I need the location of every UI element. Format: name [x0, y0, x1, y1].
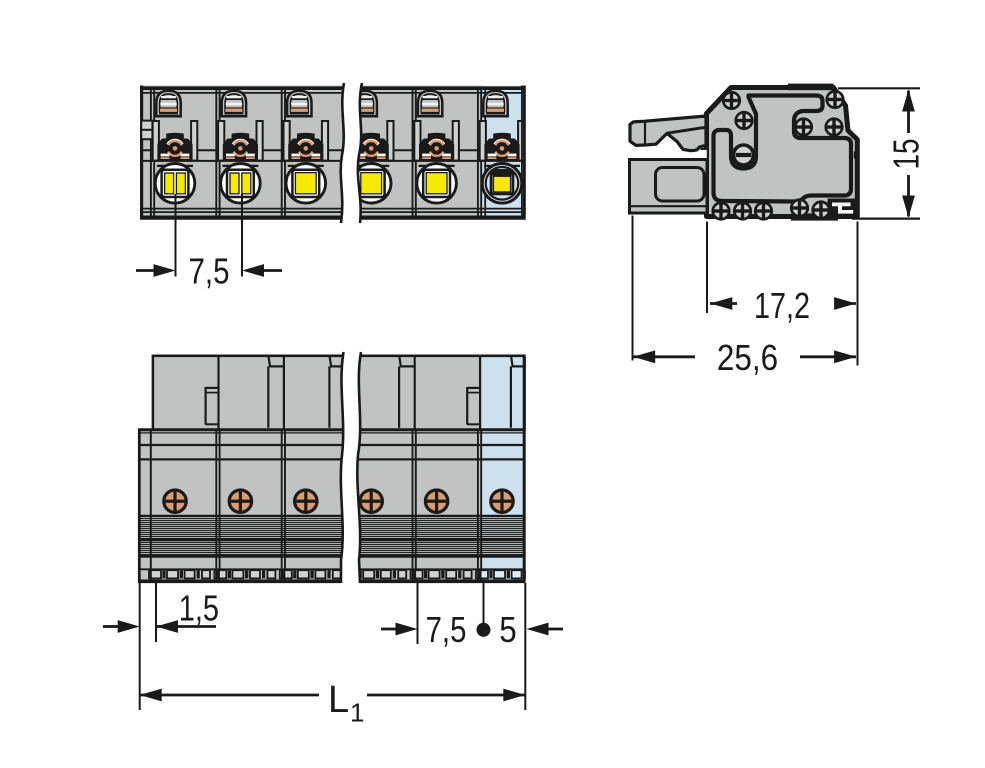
svg-text:17,2: 17,2: [754, 285, 810, 326]
svg-text:25,6: 25,6: [717, 337, 778, 378]
svg-text:1,5: 1,5: [179, 588, 219, 629]
svg-text:1: 1: [350, 698, 364, 728]
svg-text:5: 5: [499, 609, 517, 650]
svg-text:7,5: 7,5: [426, 609, 467, 650]
svg-text:15: 15: [886, 139, 927, 170]
svg-text:L: L: [328, 679, 349, 721]
svg-text:7,5: 7,5: [189, 250, 230, 291]
